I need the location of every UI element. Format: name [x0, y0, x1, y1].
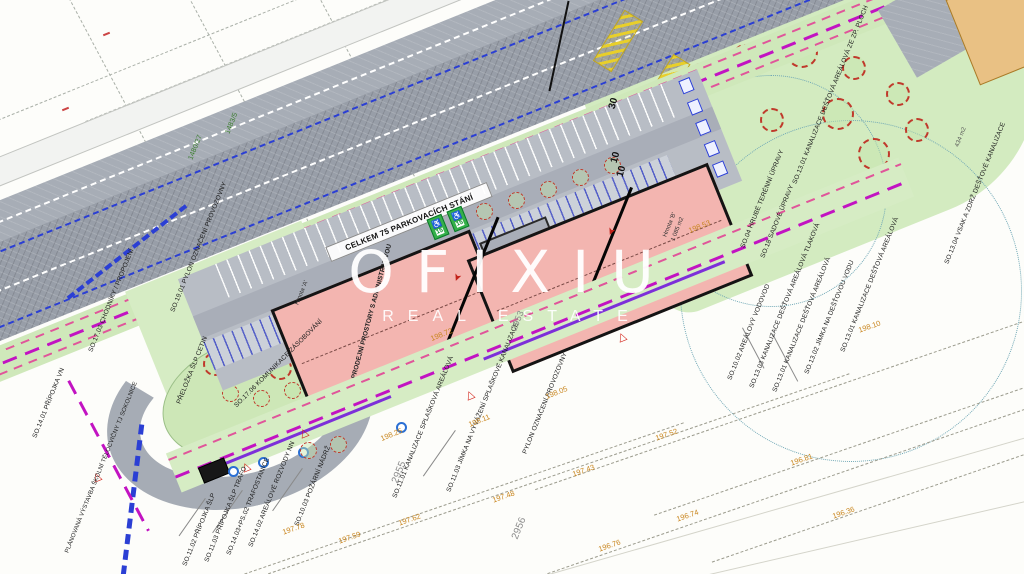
elevation-label: 198.25: [379, 426, 404, 443]
tree-icon: [886, 82, 910, 106]
parking-stall-icon: [704, 140, 720, 157]
tree-icon: [284, 382, 301, 399]
tree-icon: [572, 169, 589, 186]
survey-mark: [62, 107, 69, 111]
tree-icon: [253, 390, 270, 407]
elevation-label: 198.11: [467, 412, 491, 429]
survey-mark: [103, 32, 110, 36]
elevation-label: 196.36: [831, 505, 856, 521]
tree-icon: [905, 118, 929, 142]
stall-count: 15: [455, 219, 465, 228]
so-label: PYLON OZNAČENÍ PROVOZOVNY: [522, 351, 569, 455]
elevation-label: 197.48: [491, 489, 516, 505]
tree-icon: [330, 436, 347, 453]
parking-stall-icon: [687, 98, 703, 115]
parking-stall-icon: [678, 77, 694, 94]
stall-count: 15: [435, 227, 445, 236]
tree-icon: [508, 192, 525, 209]
elevation-label: 196.81: [789, 452, 814, 468]
parking-stall-icon: [712, 160, 728, 177]
tree-icon: [760, 108, 784, 132]
site-plan-canvas: CELKEM 75 PARKOVACÍCH STÁNÍ ♿ 15 ♿ 15 3 …: [0, 0, 1024, 574]
parcel-number: 2956: [510, 516, 529, 541]
elevation-label: 197.78: [281, 521, 306, 537]
so-label: SO.14.01 PŘÍPOJKA VN: [32, 367, 67, 439]
leader-line: [423, 430, 456, 476]
triangle-marker-icon: △: [464, 389, 476, 402]
tree-icon: [540, 181, 557, 198]
tree-icon: [476, 203, 493, 220]
tree-icon: [300, 442, 317, 459]
triangle-marker-icon: △: [616, 331, 628, 344]
elevation-label: 197.43: [571, 463, 596, 479]
